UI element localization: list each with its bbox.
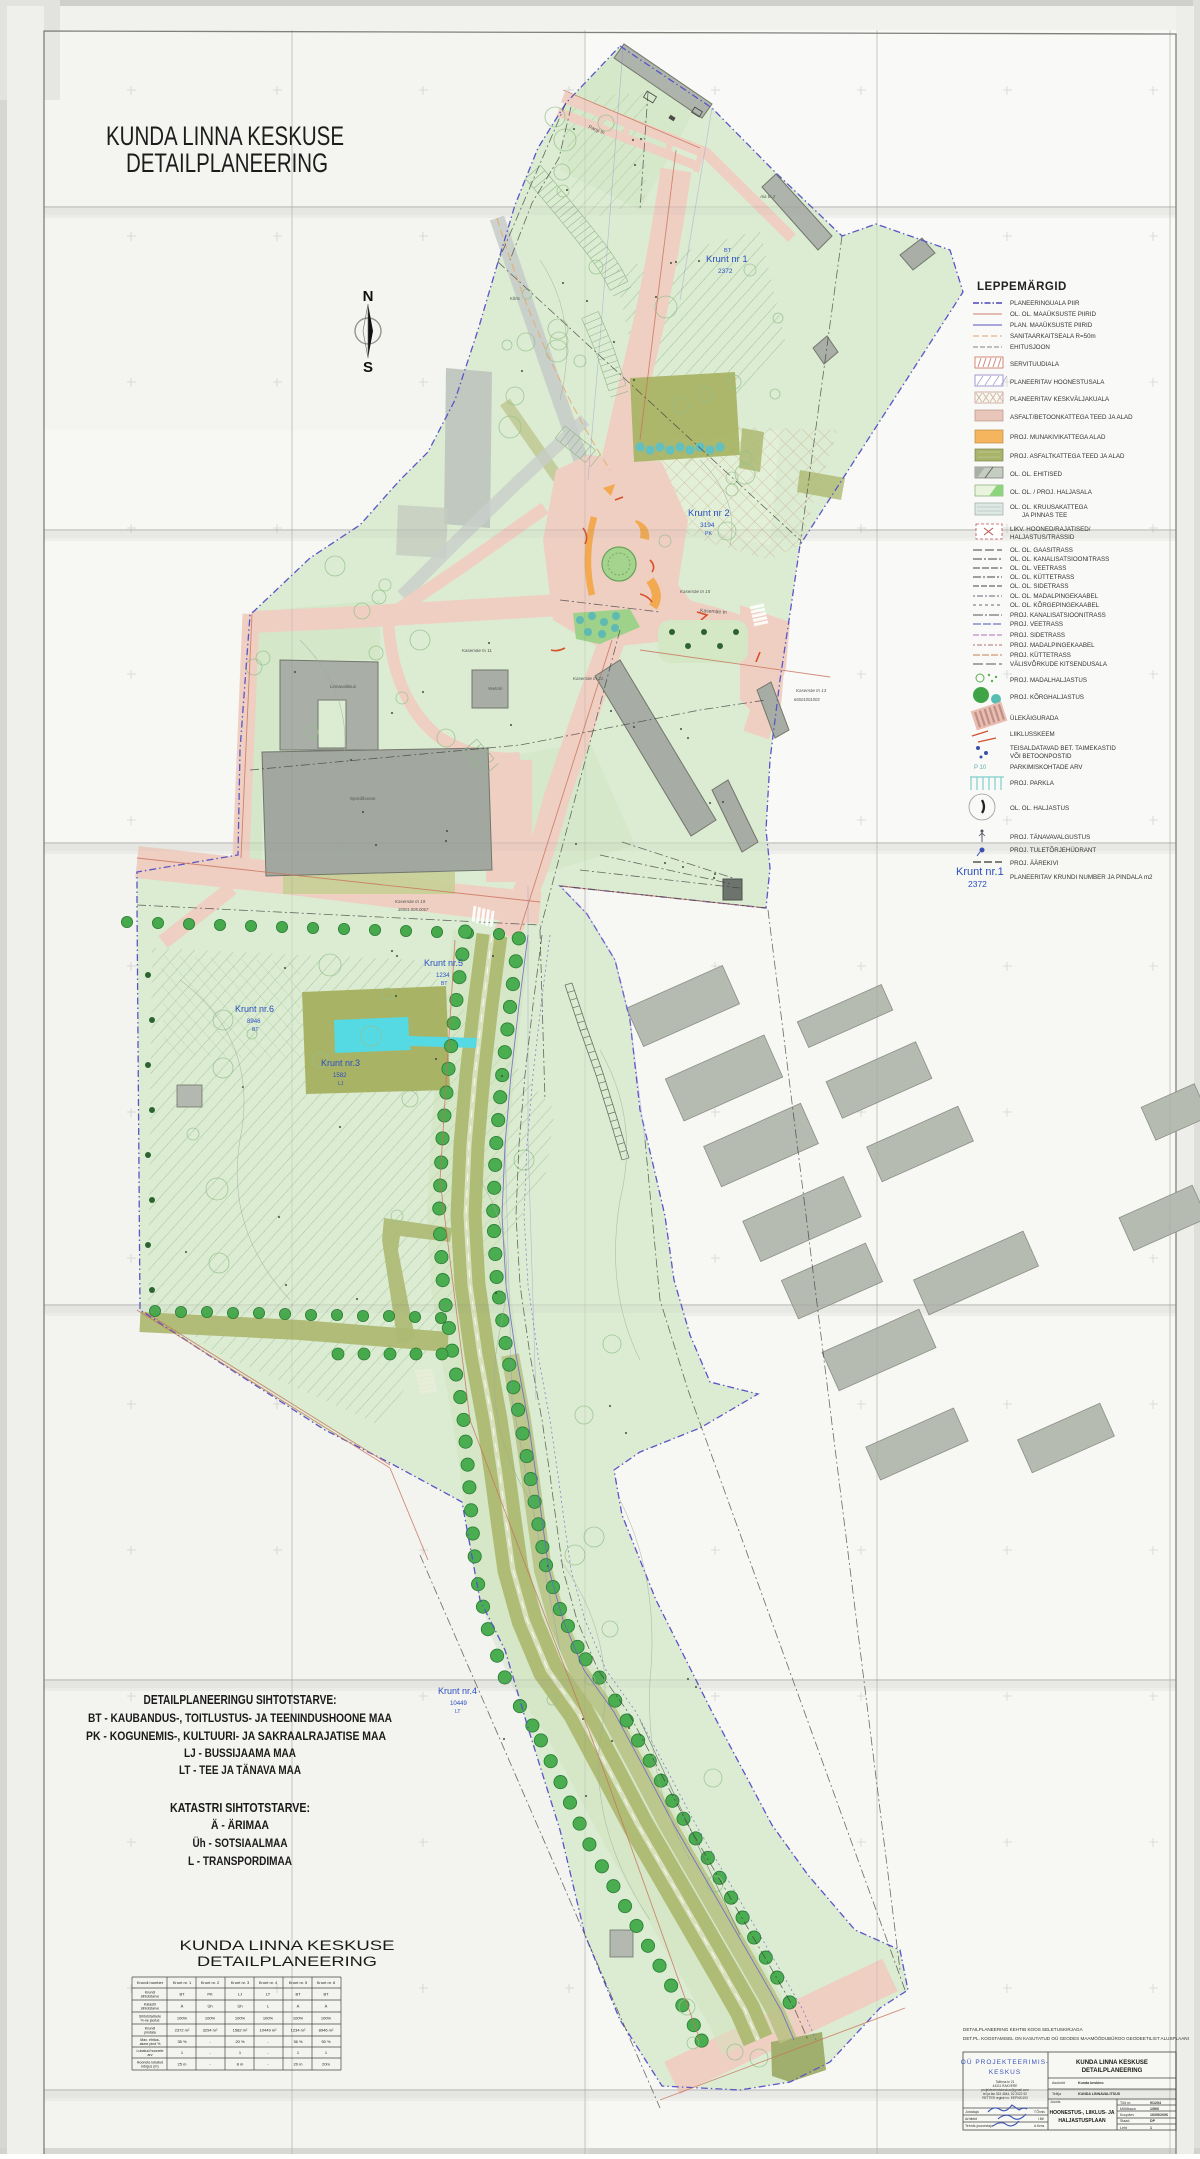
svg-text:Joonis: Joonis (1050, 2100, 1061, 2104)
svg-text:kõrgus (m): kõrgus (m) (141, 2065, 158, 2069)
svg-text:Kuupäev: Kuupäev (1120, 2113, 1134, 2117)
svg-text:Leht: Leht (1120, 2126, 1127, 2130)
svg-text:KUNDA LINNA KESKUSE: KUNDA LINNA KESKUSE (1076, 2060, 1148, 2066)
svg-text:Kõrts: Kõrts (510, 296, 520, 301)
svg-text:1: 1 (1150, 2126, 1152, 2130)
svg-text:L - TRANSPORDIMAA: L - TRANSPORDIMAA (188, 1854, 292, 1868)
svg-text:OL. OL. MADALPINGEKAABEL: OL. OL. MADALPINGEKAABEL (1010, 593, 1099, 600)
svg-text:10449: 10449 (450, 1700, 468, 1707)
svg-text:Krunt nr. 2: Krunt nr. 2 (201, 1980, 220, 1985)
svg-text:Juhataja: Juhataja (965, 2110, 979, 2114)
svg-text:DETAILPLANEERINGU SIHTOTSTARVE: DETAILPLANEERINGU SIHTOTSTARVE: (144, 1693, 337, 1707)
svg-text:1234 m²: 1234 m² (291, 2028, 306, 2033)
svg-text:1234: 1234 (436, 972, 450, 979)
svg-text:P 10: P 10 (974, 765, 987, 771)
svg-text:VÕI BETOONPOSTID: VÕI BETOONPOSTID (1010, 753, 1072, 760)
svg-text:DETAILPLANEERING KEHTIB KOOS S: DETAILPLANEERING KEHTIB KOOS SELETUSKIRJ… (963, 2027, 1084, 2032)
svg-text:OL. OL. / PROJ. HALJASALA: OL. OL. / PROJ. HALJASALA (1010, 489, 1093, 496)
svg-text:PARKIMISKOHTADE ARV: PARKIMISKOHTADE ARV (1010, 764, 1083, 771)
svg-text:OL. OL. KÜTTETRASS: OL. OL. KÜTTETRASS (1010, 574, 1074, 581)
svg-text:T.Õnnis: T.Õnnis (1034, 2109, 1045, 2114)
svg-text:ASFALT/BETOONKATTEGA TEED JA A: ASFALT/BETOONKATTEGA TEED JA ALAD (1010, 414, 1133, 421)
svg-text:LT - TEE JA TÄNAVA MAA: LT - TEE JA TÄNAVA MAA (179, 1762, 301, 1777)
svg-text:N: N (363, 288, 374, 305)
svg-text:LJ - BUSSIJAAMA MAA: LJ - BUSSIJAAMA MAA (184, 1746, 296, 1760)
svg-text:HALJASTUS/TRASSID: HALJASTUS/TRASSID (1010, 534, 1075, 541)
svg-text:Krunt nr. 6: Krunt nr. 6 (317, 1980, 336, 1985)
svg-text:KUNDA LINNAVALITSUS: KUNDA LINNAVALITSUS (1078, 2092, 1121, 2096)
svg-text:VÄLISVÕRKUDE KITSENDUSALA: VÄLISVÕRKUDE KITSENDUSALA (1010, 661, 1108, 668)
svg-text:10449 m²: 10449 m² (260, 2028, 278, 2033)
svg-text:PROJ. TULETÕRJEHÜDRANT: PROJ. TULETÕRJEHÜDRANT (1010, 847, 1096, 854)
svg-text:KESKUS: KESKUS (989, 2069, 1021, 2076)
svg-text:PLANEERITAV HOONESTUSALA: PLANEERITAV HOONESTUSALA (1010, 379, 1105, 386)
svg-text:PROJ. VEETRASS: PROJ. VEETRASS (1010, 621, 1063, 628)
svg-text:LJ: LJ (338, 1081, 344, 1087)
svg-text:20 %: 20 % (235, 2039, 245, 2044)
svg-text:16/05/2006: 16/05/2006 (1150, 2113, 1168, 2117)
svg-text:KATASTRI SIHTOTSTARVE:: KATASTRI SIHTOTSTARVE: (170, 1801, 310, 1815)
svg-text:PROJ. KÕRGHALJASTUS: PROJ. KÕRGHALJASTUS (1010, 694, 1084, 701)
svg-text:Kasemäe tn 15: Kasemäe tn 15 (680, 589, 711, 594)
svg-text:36 %: 36 % (293, 2039, 303, 2044)
svg-text:PROJ. TÄNAVAVALGUSTUS: PROJ. TÄNAVAVALGUSTUS (1010, 834, 1090, 841)
svg-text:OL. OL. KANALISATSIOONITRASS: OL. OL. KANALISATSIOONITRASS (1010, 556, 1109, 563)
svg-text:JA PINNAS TEE: JA PINNAS TEE (1022, 512, 1067, 519)
svg-text:Krunt nr.6: Krunt nr.6 (235, 1004, 274, 1014)
svg-text:TEISALDATAVAD BET. TAIMEKASTID: TEISALDATAVAD BET. TAIMEKASTID (1010, 745, 1116, 752)
svg-text:Krunt nr.3: Krunt nr.3 (321, 1058, 360, 1068)
svg-text:LJ: LJ (238, 1992, 242, 1997)
svg-text:DET.PL. KOOSTAMISEL ON KASUTAT: DET.PL. KOOSTAMISEL ON KASUTATUD OÜ GEOD… (963, 2035, 1189, 2041)
svg-text:BT: BT (179, 1992, 185, 1997)
svg-text:100%: 100% (235, 2016, 246, 2021)
svg-text:RETTER registri nr. EEP000193: RETTER registri nr. EEP000193 (982, 2096, 1028, 2100)
svg-text:OL. OL. SIDETRASS: OL. OL. SIDETRASS (1010, 583, 1068, 590)
svg-text:BT: BT (441, 981, 447, 987)
svg-text:Krunt nr 2: Krunt nr 2 (688, 508, 730, 519)
svg-text:2372: 2372 (968, 879, 987, 889)
svg-text:Ä: Ä (325, 2004, 328, 2009)
svg-text:SERVITUUDIALA: SERVITUUDIALA (1010, 361, 1060, 368)
svg-text:1/500: 1/500 (1150, 2107, 1159, 2111)
svg-text:Asukoht: Asukoht (1052, 2081, 1065, 2085)
svg-text:OÜ PROJEKTEERIMIS-: OÜ PROJEKTEERIMIS- (961, 2058, 1049, 2066)
svg-text:OL. OL. MAAÜKSUSTE PIIRID: OL. OL. MAAÜKSUSTE PIIRID (1010, 311, 1096, 318)
svg-text:Tellija: Tellija (1052, 2092, 1061, 2096)
svg-text:Kunda keskino: Kunda keskino (1078, 2081, 1104, 2085)
svg-text:8946: 8946 (247, 1018, 261, 1025)
svg-text:PLANEERINGUALA PIIR: PLANEERINGUALA PIIR (1010, 300, 1080, 307)
svg-text:PROJ. MADALHALJASTUS: PROJ. MADALHALJASTUS (1010, 677, 1087, 684)
svg-text:BT: BT (252, 1027, 258, 1033)
svg-text:BT: BT (295, 1992, 301, 1997)
svg-text:EHITUSJOON: EHITUSJOON (1010, 344, 1050, 351)
svg-text:Spordihoone: Spordihoone (350, 796, 376, 801)
svg-text:3194: 3194 (700, 522, 715, 529)
svg-text:Töö nr.: Töö nr. (1120, 2101, 1131, 2105)
svg-text:3294 m²: 3294 m² (203, 2028, 218, 2033)
svg-text:9/1204: 9/1204 (1150, 2101, 1161, 2105)
svg-text:Üh - SOTSIAALMAA: Üh - SOTSIAALMAA (193, 1835, 288, 1850)
svg-text:Krunt nr.5: Krunt nr.5 (424, 958, 463, 968)
svg-text:Kasemäe tn 19: Kasemäe tn 19 (395, 899, 426, 904)
svg-text:100%: 100% (177, 2016, 188, 2021)
svg-text:8 m: 8 m (237, 2062, 244, 2067)
svg-text:Krunt nr 1: Krunt nr 1 (706, 254, 748, 265)
svg-text:LIIKLUSSKEEM: LIIKLUSSKEEM (1010, 731, 1055, 738)
svg-text:100%: 100% (321, 2016, 332, 2021)
svg-text:PK - KOGUNEMIS-, KULTUURI- JA: PK - KOGUNEMIS-, KULTUURI- JA SAKRAALRAJ… (86, 1729, 386, 1743)
svg-text:100%: 100% (293, 2016, 304, 2021)
svg-text:PLAN. MAAÜKSUSTE PIIRID: PLAN. MAAÜKSUSTE PIIRID (1010, 322, 1093, 329)
svg-text:1582 m²: 1582 m² (233, 2028, 248, 2033)
svg-text:PROJ. MADALPINGEKAABEL: PROJ. MADALPINGEKAABEL (1010, 642, 1095, 649)
svg-text:DETAILPLANEERING: DETAILPLANEERING (197, 1954, 377, 1969)
svg-text:PLANEERITAV KESKVÄLJAKUALA: PLANEERITAV KESKVÄLJAKUALA (1010, 396, 1110, 403)
svg-text:OL. OL. KRUUSAKATTEGA: OL. OL. KRUUSAKATTEGA (1010, 504, 1088, 511)
svg-text:LEPPEMÄRGID: LEPPEMÄRGID (977, 280, 1067, 293)
svg-text:2372 m²: 2372 m² (175, 2028, 190, 2033)
svg-text:1582: 1582 (333, 1072, 347, 1079)
svg-text:Krunt nr.1: Krunt nr.1 (956, 866, 1004, 878)
svg-text:Krunt nr. 5: Krunt nr. 5 (289, 1980, 308, 1985)
svg-text:Aia tn 2: Aia tn 2 (759, 194, 776, 199)
svg-text:Üh: Üh (207, 2004, 212, 2009)
svg-text:Veetorn: Veetorn (488, 686, 503, 691)
svg-text:OL. OL. VEETRASS: OL. OL. VEETRASS (1010, 565, 1066, 572)
svg-text:PROJ. KÜTTETRASS: PROJ. KÜTTETRASS (1010, 652, 1071, 659)
svg-text:alune pind %: alune pind % (140, 2042, 162, 2046)
svg-text:Üh: Üh (237, 2004, 242, 2009)
svg-text:36501.005.0067: 36501.005.0067 (398, 907, 429, 912)
svg-text:Kasemäe tn 11: Kasemäe tn 11 (462, 648, 492, 653)
svg-text:Linnavalitsus: Linnavalitsus (330, 684, 357, 689)
svg-text:PROJ. MUNAKIVIKATTEGA ALAD: PROJ. MUNAKIVIKATTEGA ALAD (1010, 434, 1106, 441)
svg-text:Ä: Ä (181, 2004, 184, 2009)
svg-text:pindala: pindala (144, 2031, 156, 2035)
svg-text:LT: LT (455, 1709, 460, 1715)
svg-text:Krunt nr. 1: Krunt nr. 1 (173, 1980, 192, 1985)
svg-text:Ä - ÄRIMAA: Ä - ÄRIMAA (211, 1817, 269, 1832)
svg-text:LIKV. HOONED/RAJATISED/: LIKV. HOONED/RAJATISED/ (1010, 526, 1091, 533)
svg-text:50 %: 50 % (321, 2039, 331, 2044)
svg-text:SANITAARKAITSEALA R=50m: SANITAARKAITSEALA R=50m (1010, 333, 1096, 340)
svg-text:20 m: 20 m (294, 2062, 304, 2067)
svg-text:8946 m²: 8946 m² (319, 2028, 334, 2033)
svg-text:arv: arv (148, 2053, 153, 2057)
svg-text:100%: 100% (263, 2016, 274, 2021)
svg-text:Kasemäe tn 13: Kasemäe tn 13 (796, 688, 827, 693)
svg-text:BT - KAUBANDUS-, TOITLUSTUS-: BT - KAUBANDUS-, TOITLUSTUS- JA TEENINDU… (88, 1711, 392, 1725)
svg-text:A.Kens: A.Kens (1034, 2124, 1045, 2128)
svg-text:OL. OL. EHITISED: OL. OL. EHITISED (1010, 471, 1062, 478)
svg-text:Krundi number: Krundi number (137, 1980, 164, 1985)
svg-text:DP: DP (1150, 2119, 1156, 2123)
svg-text:PROJ. ASFALTKATTEGA TEED JA AL: PROJ. ASFALTKATTEGA TEED JA ALAD (1010, 453, 1125, 460)
svg-text:HALJASTUSPLAAN: HALJASTUSPLAAN (1058, 2118, 1106, 2124)
svg-text:BT: BT (323, 1992, 329, 1997)
svg-text:sihtotstarve: sihtotstarve (141, 1995, 159, 1999)
svg-text:66501001003: 66501001003 (794, 697, 820, 702)
svg-text:2372: 2372 (718, 268, 733, 275)
svg-text:Krunt nr. 3: Krunt nr. 3 (231, 1980, 250, 1985)
svg-text:HOONESTUS-, LIIKLUS- JA: HOONESTUS-, LIIKLUS- JA (1049, 2110, 1114, 2116)
svg-text:PROJ. PARKLA: PROJ. PARKLA (1010, 780, 1055, 787)
svg-text:KUNDA LINNA KESKUSE: KUNDA LINNA KESKUSE (106, 121, 344, 151)
svg-text:PK: PK (207, 1992, 213, 1997)
svg-text:Staad.: Staad. (1120, 2119, 1130, 2123)
svg-text:DETAILPLANEERING: DETAILPLANEERING (126, 148, 328, 178)
svg-text:25 m: 25 m (178, 2062, 188, 2067)
svg-text:20m: 20m (322, 2062, 330, 2067)
svg-text:100%: 100% (205, 2016, 216, 2021)
svg-text:OL. OL. HALJASTUS: OL. OL. HALJASTUS (1010, 805, 1069, 812)
svg-text:Arhitekt: Arhitekt (965, 2117, 977, 2121)
svg-text:DETAILPLANEERING: DETAILPLANEERING (1082, 2068, 1143, 2074)
svg-text:S: S (363, 359, 373, 376)
svg-text:LT: LT (266, 1992, 271, 1997)
svg-text:PROJ. SIDETRASS: PROJ. SIDETRASS (1010, 632, 1065, 639)
svg-text:PROJ. KANALISATSIOONITRASS: PROJ. KANALISATSIOONITRASS (1010, 612, 1106, 619)
svg-text:Krunt nr. 4: Krunt nr. 4 (259, 1980, 278, 1985)
svg-text:I.Mil: I.Mil (1038, 2117, 1044, 2121)
svg-text:PLANEERITAV KRUNDI NUMBER JA P: PLANEERITAV KRUNDI NUMBER JA PINDALA m2 (1010, 874, 1153, 881)
svg-text:OL. OL. KÕRGEPINGEKAABEL: OL. OL. KÕRGEPINGEKAABEL (1010, 602, 1100, 609)
svg-text:ÜLEKÄIGURADA: ÜLEKÄIGURADA (1010, 715, 1059, 722)
svg-text:Mõõtkava: Mõõtkava (1120, 2107, 1136, 2111)
svg-text:PROJ. ÄÄREKIVI: PROJ. ÄÄREKIVI (1010, 860, 1059, 867)
svg-text:sihtotstarve: sihtotstarve (141, 2007, 159, 2011)
svg-text:%-ne jaotus: %-ne jaotus (141, 2019, 160, 2023)
svg-text:KUNDA LINNA KESKUSE: KUNDA LINNA KESKUSE (180, 1938, 395, 1953)
svg-text:OL. OL. GAASITRASS: OL. OL. GAASITRASS (1010, 547, 1073, 554)
svg-text:35 %: 35 % (177, 2039, 187, 2044)
svg-text:Tehnik-joonestaja: Tehnik-joonestaja (965, 2124, 993, 2128)
svg-text:Ä: Ä (297, 2004, 300, 2009)
svg-text:Kasemäe tn 21: Kasemäe tn 21 (573, 676, 604, 681)
